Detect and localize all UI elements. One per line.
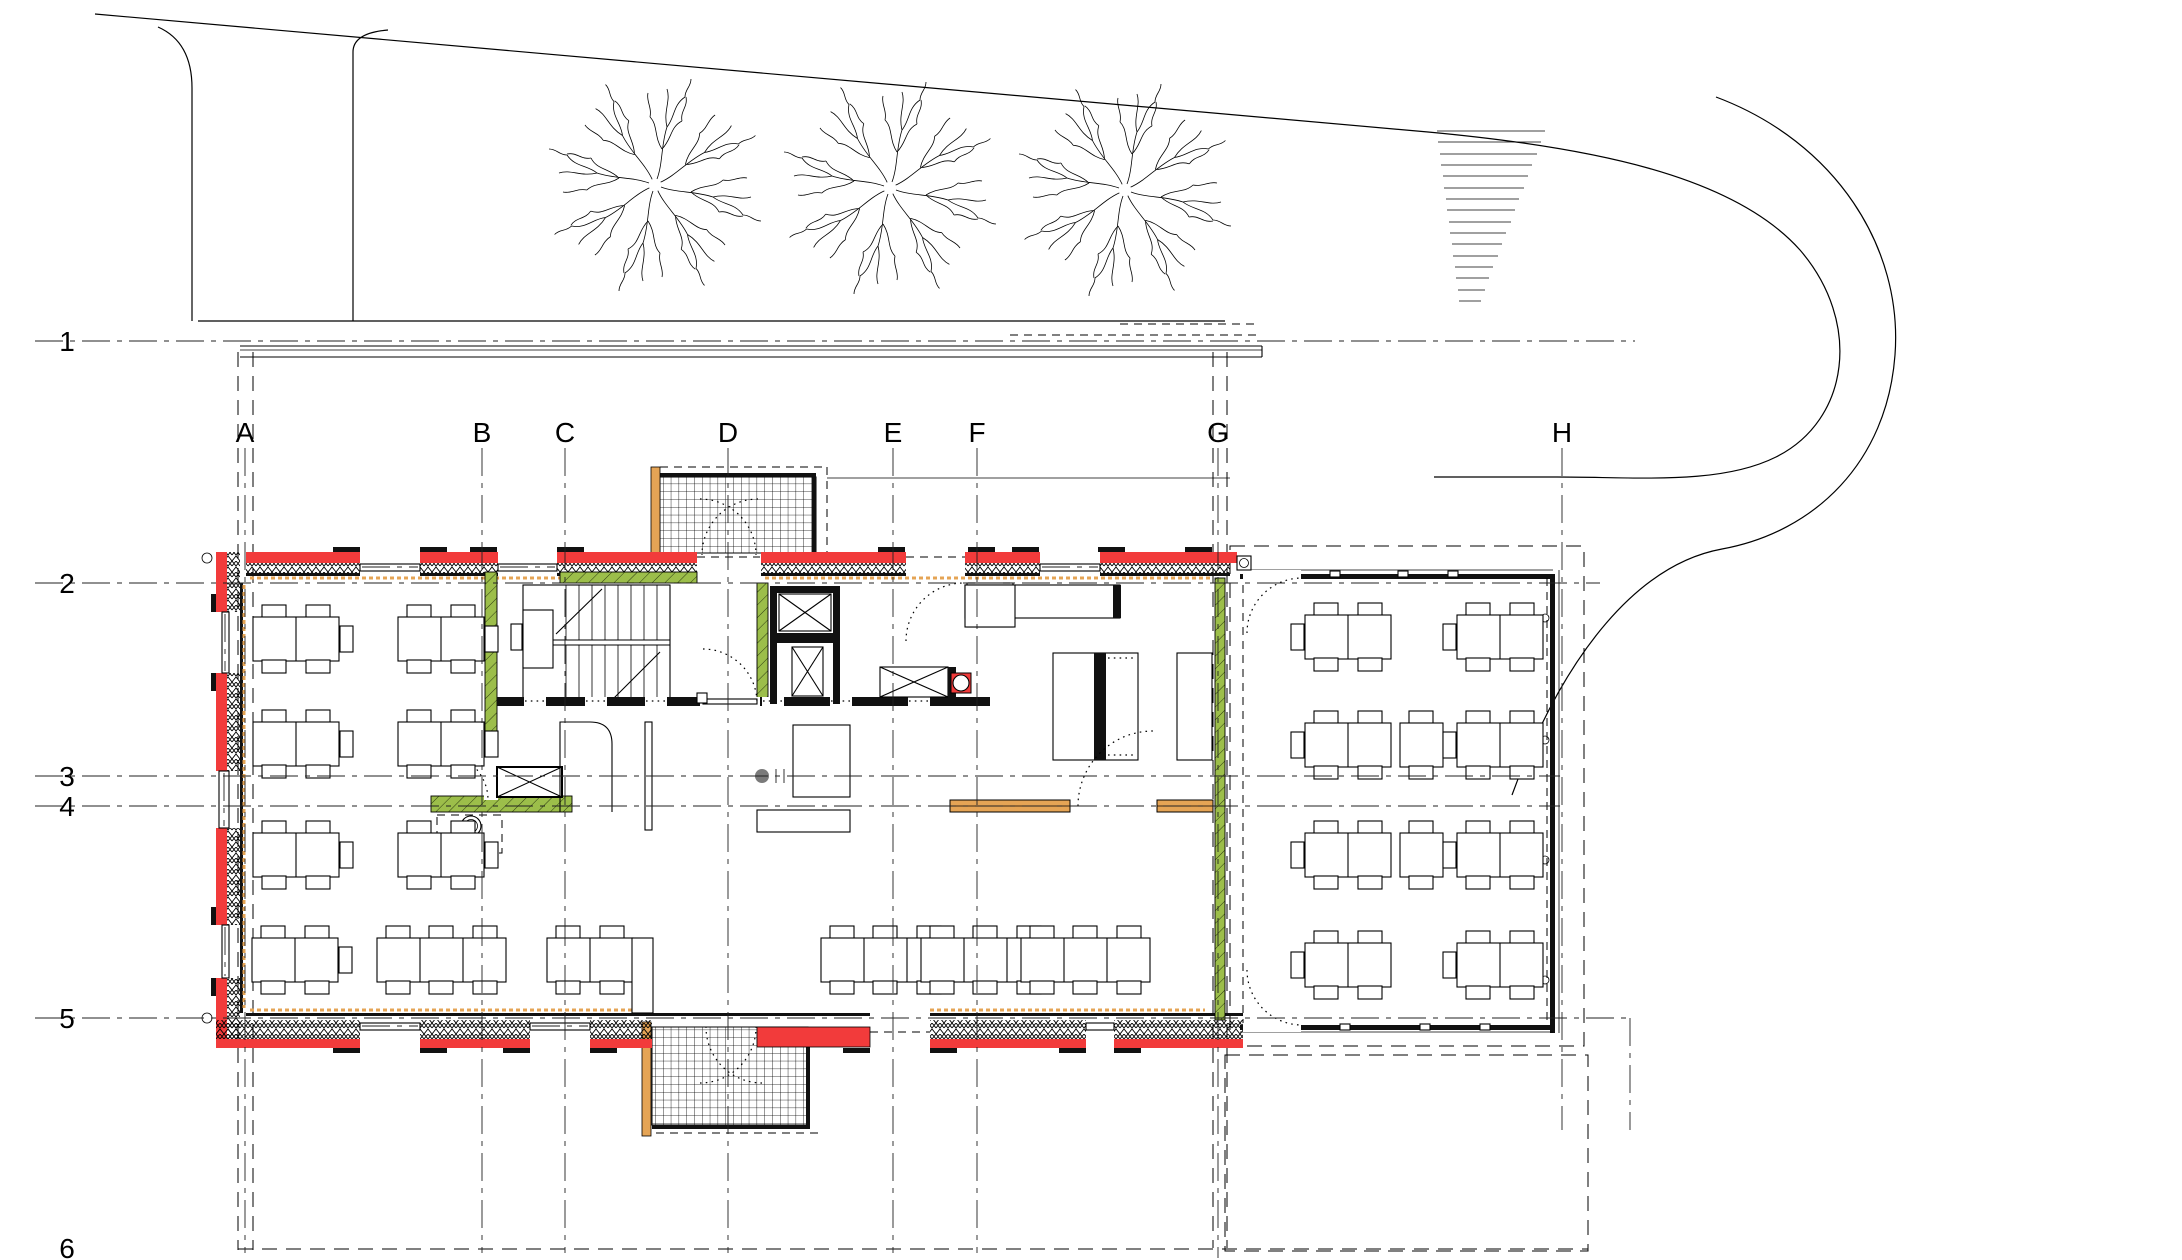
- dining-table: [253, 710, 353, 778]
- grid-label-col: G: [1207, 417, 1229, 448]
- floor-plan-drawing: A B C D E F G H 1 2 3 4 5 6: [0, 0, 2182, 1260]
- grid-label-col: A: [236, 417, 255, 448]
- grid-label-col: H: [1552, 417, 1572, 448]
- dining-table: [1021, 926, 1150, 994]
- dining-table: [1291, 711, 1391, 779]
- counter: [757, 810, 850, 832]
- driveway: [158, 27, 1225, 321]
- road-inner-edge: [95, 14, 1840, 478]
- dining-table: [1400, 821, 1443, 889]
- grid-label-row: 3: [59, 761, 75, 792]
- sidewalk: [240, 324, 1262, 357]
- tree-icon: [784, 82, 996, 294]
- grid-label-row: 1: [59, 326, 75, 357]
- trees: [549, 79, 1231, 296]
- dining-table: [252, 926, 352, 994]
- work-table: [793, 725, 850, 797]
- grid-label-col: E: [884, 417, 903, 448]
- grid-label-col: B: [473, 417, 492, 448]
- tree-icon: [1019, 84, 1231, 296]
- dining-table: [1443, 711, 1543, 779]
- site-plan: [95, 14, 1896, 1251]
- stair-landing-table: [523, 610, 553, 668]
- door-swing: [703, 649, 757, 703]
- dining-table: [253, 605, 353, 673]
- dining-table: [398, 710, 498, 778]
- grid-label-col: C: [555, 417, 575, 448]
- external-steps: [1437, 131, 1545, 301]
- dining-table: [377, 926, 506, 994]
- structural-grid: [35, 341, 1635, 1258]
- kitchen: [950, 653, 1213, 812]
- grid-label-row: 2: [59, 568, 75, 599]
- grid-label-row: 5: [59, 1003, 75, 1034]
- entrance-door-swing: [906, 583, 964, 641]
- dining-table: [1291, 931, 1391, 999]
- corner-marker-o: [202, 553, 212, 563]
- door-leaf: [703, 699, 757, 704]
- dining-table: [398, 605, 498, 673]
- servery-counters: [560, 722, 850, 832]
- elevator-shafts: [770, 586, 840, 704]
- dining-table: [1291, 603, 1391, 671]
- dining-table: [1291, 821, 1391, 889]
- grid-label-row: 6: [59, 1233, 75, 1260]
- grid-label-row: 4: [59, 791, 75, 822]
- terrace-outline: [1225, 1055, 1588, 1251]
- bench-cabinet: [632, 938, 653, 1013]
- grid-label-col: D: [718, 417, 738, 448]
- timber-post: [651, 467, 660, 553]
- kitchen-counter: [1177, 653, 1212, 760]
- dining-table: [1443, 603, 1543, 671]
- window-jambs: [211, 594, 216, 996]
- dining-table: [1443, 931, 1543, 999]
- tree-icon: [549, 79, 761, 291]
- floor-plan-sheet: A B C D E F G H 1 2 3 4 5 6: [0, 0, 2182, 1260]
- dining-table: [398, 821, 498, 889]
- servery-south-wall: [757, 1027, 870, 1047]
- grid-label-col: F: [968, 417, 985, 448]
- dining-table: [1443, 821, 1543, 889]
- dining-table: [253, 821, 353, 889]
- entrance-porch-north: [651, 467, 827, 555]
- building: [202, 467, 1559, 1136]
- staircase: [511, 585, 670, 700]
- dining-table: [1400, 711, 1443, 779]
